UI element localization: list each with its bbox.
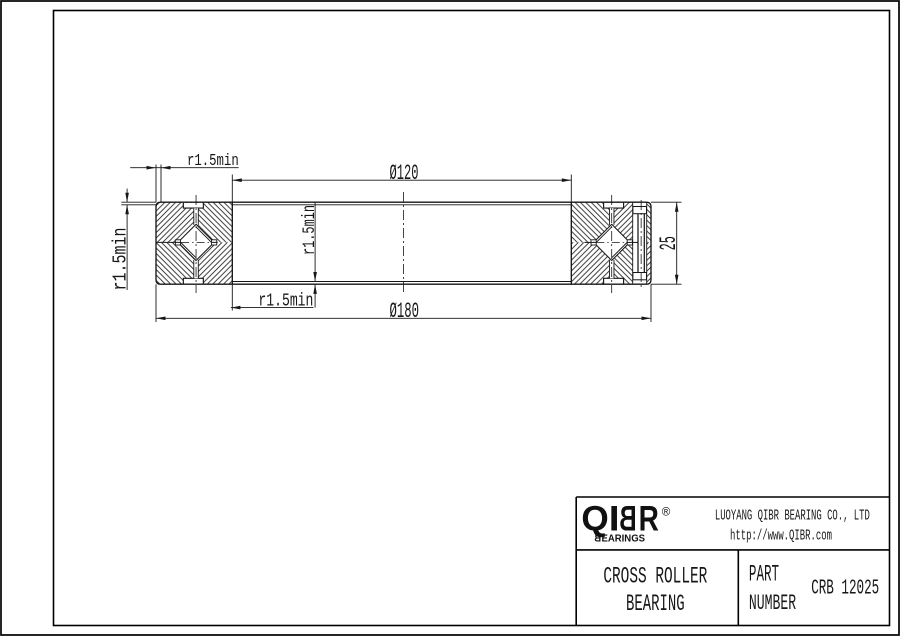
svg-text:CROSS ROLLER: CROSS ROLLER (603, 564, 707, 590)
svg-text:r1.5min: r1.5min (258, 292, 313, 312)
svg-text:Ø120: Ø120 (390, 161, 419, 186)
svg-text:CRB 12025: CRB 12025 (811, 577, 879, 600)
svg-text:NUMBER: NUMBER (749, 591, 796, 616)
svg-text:r1.5min: r1.5min (187, 151, 239, 170)
svg-text:EARINGS: EARINGS (602, 533, 646, 545)
svg-text:BEARING: BEARING (626, 591, 685, 617)
svg-text:B: B (594, 533, 601, 545)
svg-text:®: ® (662, 507, 671, 519)
svg-text:r1.5min: r1.5min (300, 205, 320, 255)
svg-text:25: 25 (656, 236, 682, 250)
svg-text:LUOYANG QIBR BEARING CO., LTD: LUOYANG QIBR BEARING CO., LTD (715, 509, 870, 525)
svg-text:Ø180: Ø180 (390, 299, 420, 324)
svg-text:http://www.QIBR.com: http://www.QIBR.com (730, 528, 832, 544)
svg-text:PART: PART (749, 562, 779, 588)
svg-text:r1.5min: r1.5min (110, 228, 132, 291)
